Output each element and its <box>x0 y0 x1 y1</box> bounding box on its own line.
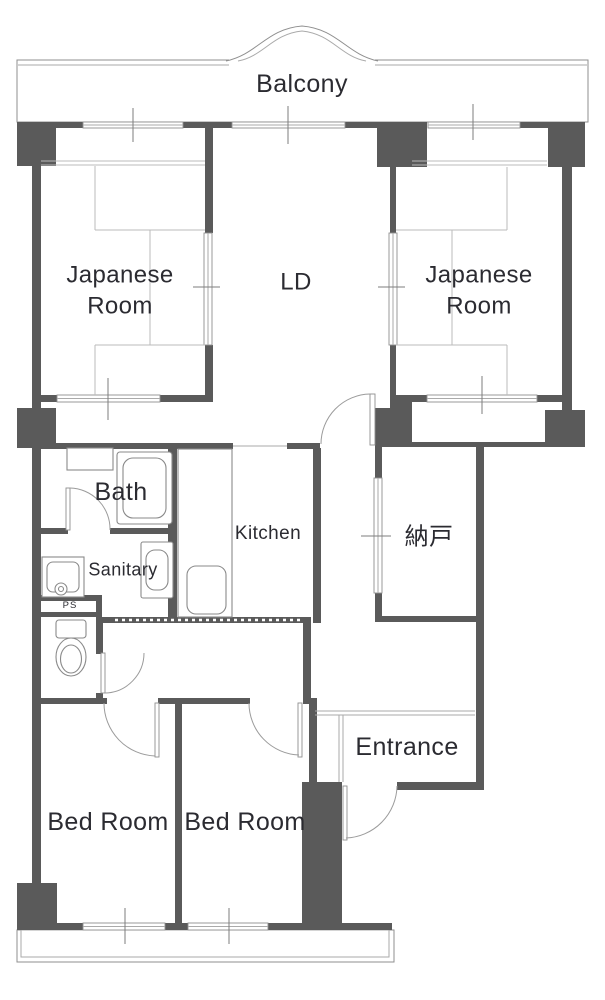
window <box>188 923 268 930</box>
wall-segment <box>41 923 83 930</box>
wall-segment <box>158 698 250 704</box>
wall-segment <box>96 595 102 618</box>
wall-segment <box>205 345 213 402</box>
bottom-balcony <box>17 930 394 962</box>
wall-segment <box>476 447 484 790</box>
wall-segment <box>96 617 103 654</box>
sliding-door <box>204 233 212 345</box>
label-bath: Bath <box>94 476 147 508</box>
wall-segment <box>17 883 57 930</box>
wall-segment <box>303 698 317 704</box>
bedroom-left-door <box>104 703 159 757</box>
kitchen-sink-icon <box>187 566 226 614</box>
wall-segment <box>375 447 382 478</box>
label-entrance: Entrance <box>355 731 458 763</box>
wall-segment <box>345 122 377 128</box>
wall-segment <box>303 620 311 703</box>
sliding-door <box>389 233 397 345</box>
floor-plan-drawing <box>0 0 605 1000</box>
wall-segment <box>205 123 213 233</box>
wall-segment <box>165 923 188 930</box>
wall-segment <box>548 122 585 167</box>
wall-segment <box>40 612 102 617</box>
wall-segment <box>268 923 392 930</box>
wall-segment <box>520 122 548 128</box>
wall-segment <box>302 782 342 923</box>
wall-segment <box>562 167 572 410</box>
floor-plan: Balcony Japanese Room LD Japanese Room B… <box>0 0 605 1000</box>
label-living-dining: LD <box>280 268 311 299</box>
wall-segment <box>375 408 412 447</box>
label-sanitary: Sanitary <box>88 558 157 581</box>
bedroom-right-door <box>249 703 302 757</box>
window <box>83 923 165 930</box>
wall-segment <box>545 410 585 447</box>
ld-door <box>321 394 375 445</box>
washing-machine-icon <box>42 557 84 597</box>
wall-segment <box>41 698 107 704</box>
label-japanese-room-left: Japanese Room <box>45 260 195 321</box>
window <box>428 122 520 128</box>
wall-segment <box>377 122 427 167</box>
wall-segment <box>537 395 572 402</box>
label-pipe-space: PS <box>63 600 78 612</box>
wall-segment <box>390 345 396 402</box>
wall-segment <box>110 528 168 534</box>
label-kitchen: Kitchen <box>235 522 301 546</box>
wall-segment <box>32 166 41 883</box>
wall-segment <box>397 782 483 790</box>
wall-segment <box>41 528 68 534</box>
wall-segment <box>17 122 83 128</box>
wall-segment <box>41 395 57 402</box>
wall-segment <box>375 616 477 622</box>
wall-segment <box>390 167 396 233</box>
label-bedroom-right: Bed Room <box>184 806 305 838</box>
entrance-door <box>343 786 397 840</box>
toilet-icon <box>56 620 86 676</box>
label-japanese-room-right: Japanese Room <box>404 260 554 321</box>
wall-segment <box>175 703 182 925</box>
wall-segment <box>309 700 317 784</box>
label-balcony: Balcony <box>256 68 348 100</box>
wall-segment <box>412 442 545 447</box>
wall-segment <box>160 395 213 402</box>
wash-basin-icon <box>67 448 113 470</box>
wall-segment <box>17 408 56 448</box>
toilet-door <box>101 653 144 693</box>
wall-segment <box>390 395 427 402</box>
label-storage: 納戸 <box>405 523 454 554</box>
wall-segment <box>17 122 56 166</box>
wall-segment <box>313 448 321 623</box>
label-bedroom-left: Bed Room <box>47 806 168 838</box>
